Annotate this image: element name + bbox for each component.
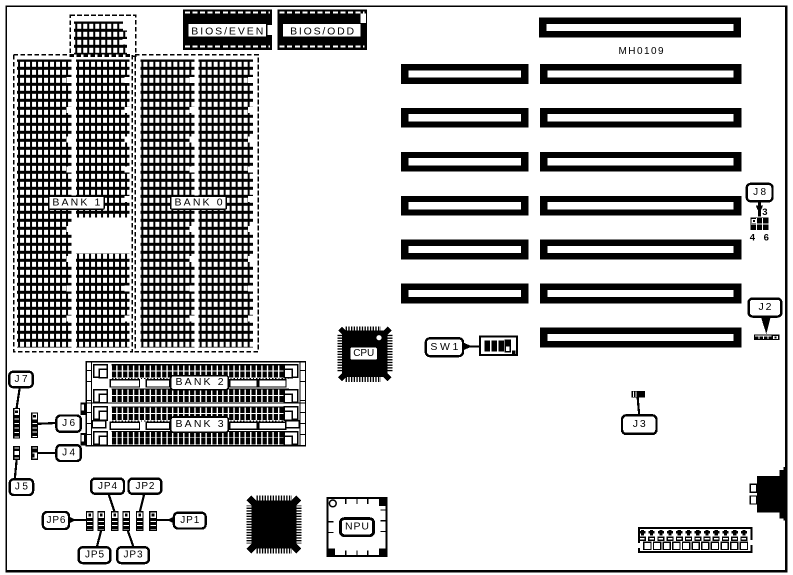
svg-text:J3: J3 bbox=[633, 418, 646, 430]
svg-text:J7: J7 bbox=[15, 374, 28, 385]
svg-text:J5: J5 bbox=[15, 482, 28, 493]
svg-text:JP3: JP3 bbox=[124, 550, 143, 561]
svg-text:4: 4 bbox=[750, 233, 756, 244]
svg-text:J2: J2 bbox=[759, 301, 772, 313]
svg-text:6: 6 bbox=[764, 233, 769, 244]
svg-text:JP1: JP1 bbox=[180, 515, 199, 526]
svg-text:SW1: SW1 bbox=[430, 341, 458, 353]
svg-text:MH0109: MH0109 bbox=[619, 46, 664, 57]
svg-text:J6: J6 bbox=[62, 418, 75, 429]
svg-text:J8: J8 bbox=[753, 187, 766, 198]
svg-text:JP6: JP6 bbox=[46, 515, 65, 526]
svg-text:CPU: CPU bbox=[353, 348, 374, 359]
svg-text:JP2: JP2 bbox=[135, 481, 154, 492]
svg-text:JP5: JP5 bbox=[85, 550, 104, 561]
svg-text:J4: J4 bbox=[62, 448, 75, 459]
svg-text:3: 3 bbox=[762, 207, 767, 218]
svg-text:JP4: JP4 bbox=[98, 481, 117, 492]
svg-text:NPU: NPU bbox=[345, 521, 369, 533]
